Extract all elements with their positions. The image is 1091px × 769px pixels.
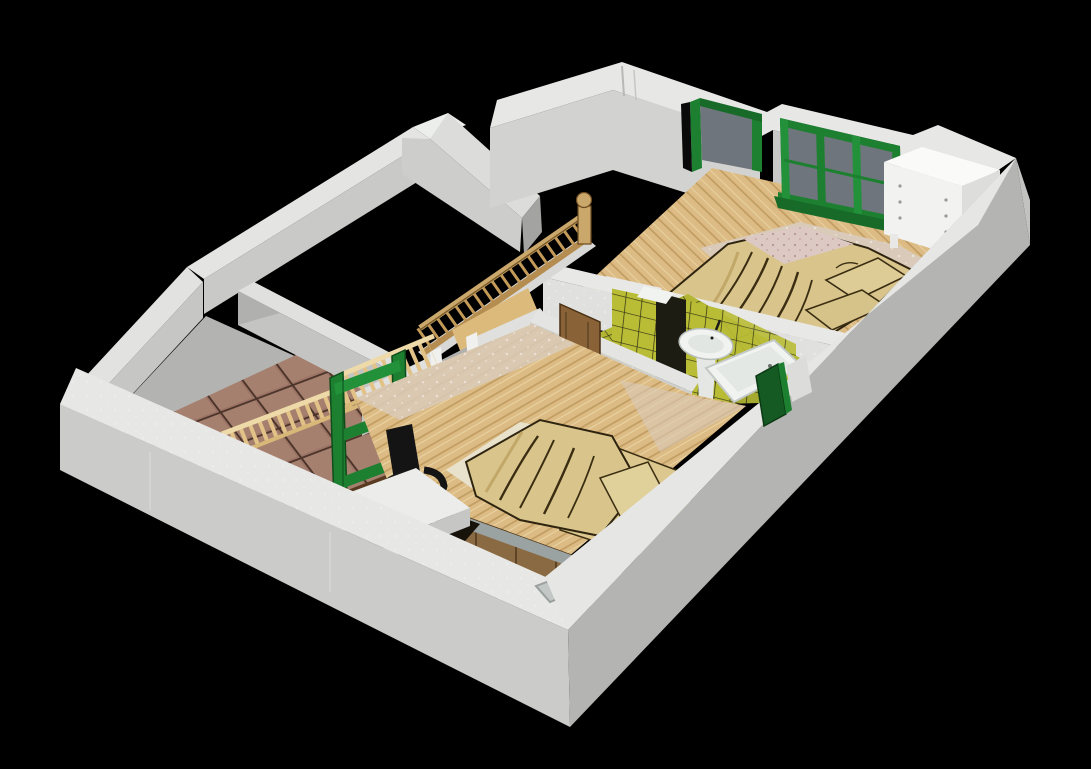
floorplan-render-stage: [0, 0, 1091, 769]
floorplan-3d-render: [0, 0, 1091, 769]
newel-post: [577, 193, 592, 245]
